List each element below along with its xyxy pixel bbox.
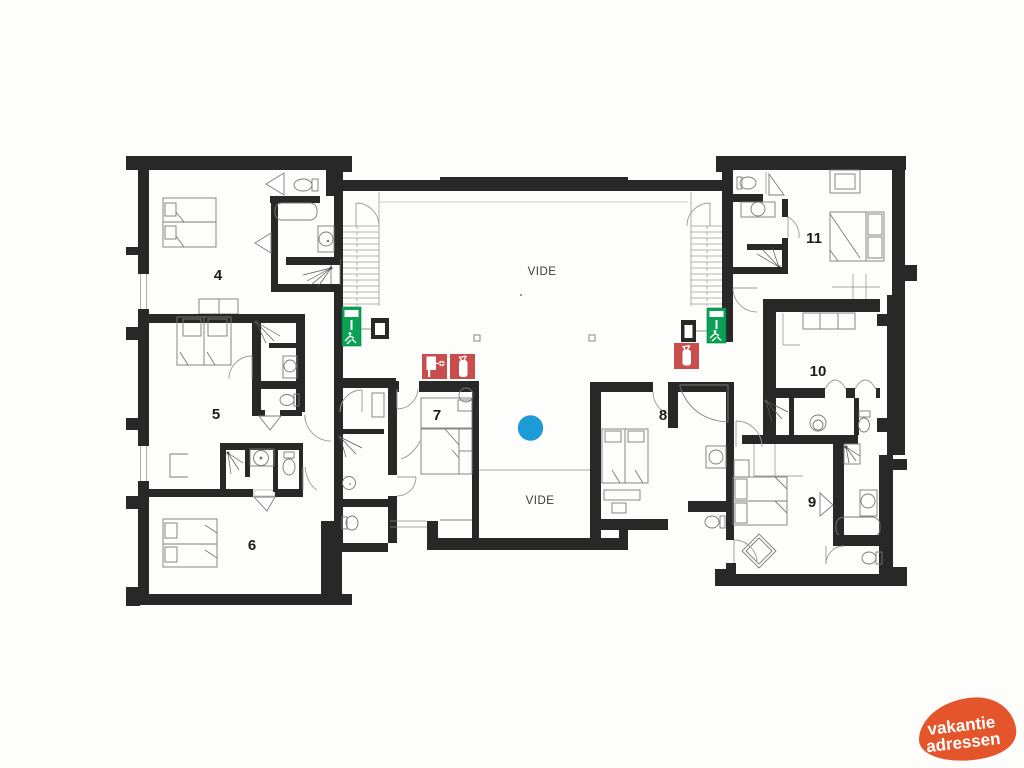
svg-text:9: 9	[808, 494, 816, 511]
svg-text:5: 5	[212, 406, 220, 423]
svg-text:6: 6	[248, 537, 256, 554]
svg-text:7: 7	[433, 407, 441, 424]
svg-text:VIDE: VIDE	[526, 495, 555, 507]
svg-text:VIDE: VIDE	[528, 266, 557, 278]
svg-text:11: 11	[806, 230, 822, 247]
svg-text:4: 4	[214, 267, 223, 284]
svg-text:8: 8	[659, 407, 667, 424]
svg-text:10: 10	[810, 363, 827, 380]
